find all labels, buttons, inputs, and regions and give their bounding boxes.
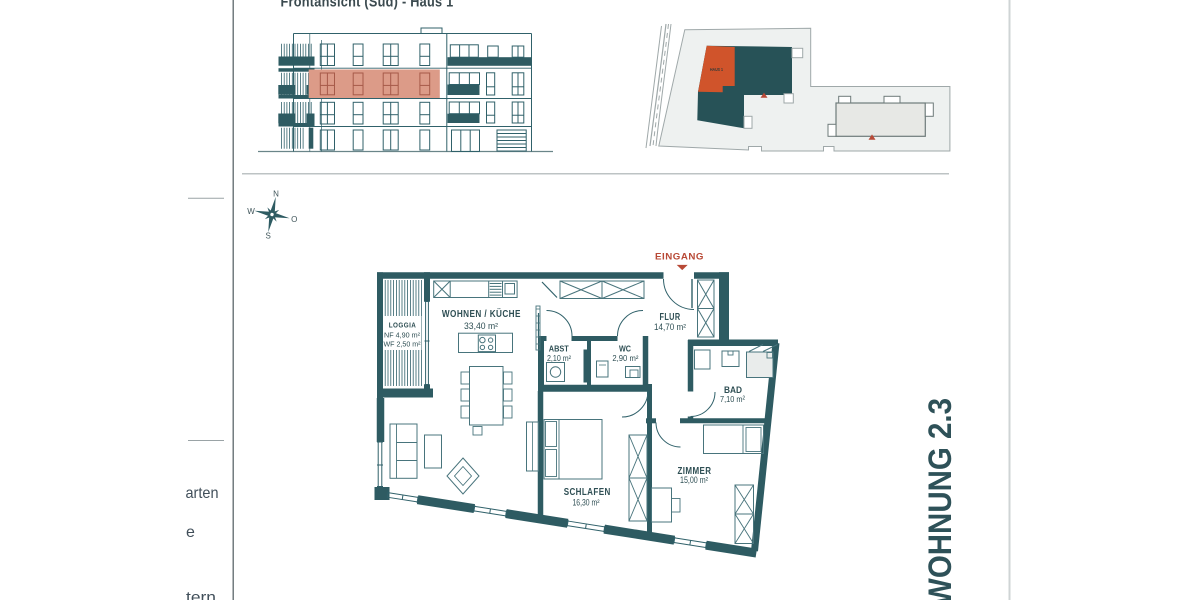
svg-text:7,10 m²: 7,10 m² — [720, 394, 745, 404]
svg-text:2,90 m²: 2,90 m² — [612, 354, 638, 363]
svg-text:HAUS 1: HAUS 1 — [710, 67, 724, 72]
svg-text:2,10 m²: 2,10 m² — [547, 354, 571, 363]
svg-text:EINGANG: EINGANG — [655, 252, 704, 263]
svg-text:Frontansicht (Süd) - Haus 1: Frontansicht (Süd) - Haus 1 — [281, 0, 454, 11]
svg-text:N: N — [273, 190, 279, 199]
svg-text:ABST: ABST — [549, 345, 569, 354]
svg-text:WOHNEN / KÜCHE: WOHNEN / KÜCHE — [442, 307, 521, 320]
svg-text:S: S — [266, 232, 271, 241]
svg-text:SCHLAFEN: SCHLAFEN — [564, 487, 611, 498]
svg-text:W: W — [247, 207, 255, 216]
svg-text:LOGGIA: LOGGIA — [389, 321, 417, 330]
svg-text:e: e — [186, 524, 195, 541]
svg-text:15,00 m²: 15,00 m² — [680, 475, 708, 485]
svg-text:33,40 m²: 33,40 m² — [464, 321, 498, 331]
svg-text:16,30 m²: 16,30 m² — [573, 498, 600, 508]
svg-text:WF 2,50 m²: WF 2,50 m² — [384, 342, 422, 349]
svg-text:tern: tern — [186, 590, 216, 601]
svg-text:WC: WC — [619, 345, 631, 354]
svg-text:arten: arten — [186, 485, 219, 502]
svg-text:O: O — [291, 215, 297, 224]
svg-text:14,70 m²: 14,70 m² — [654, 322, 686, 332]
svg-text:WOHNUNG 2.3: WOHNUNG 2.3 — [922, 398, 958, 600]
svg-text:NF 4,90 m²: NF 4,90 m² — [384, 333, 421, 340]
